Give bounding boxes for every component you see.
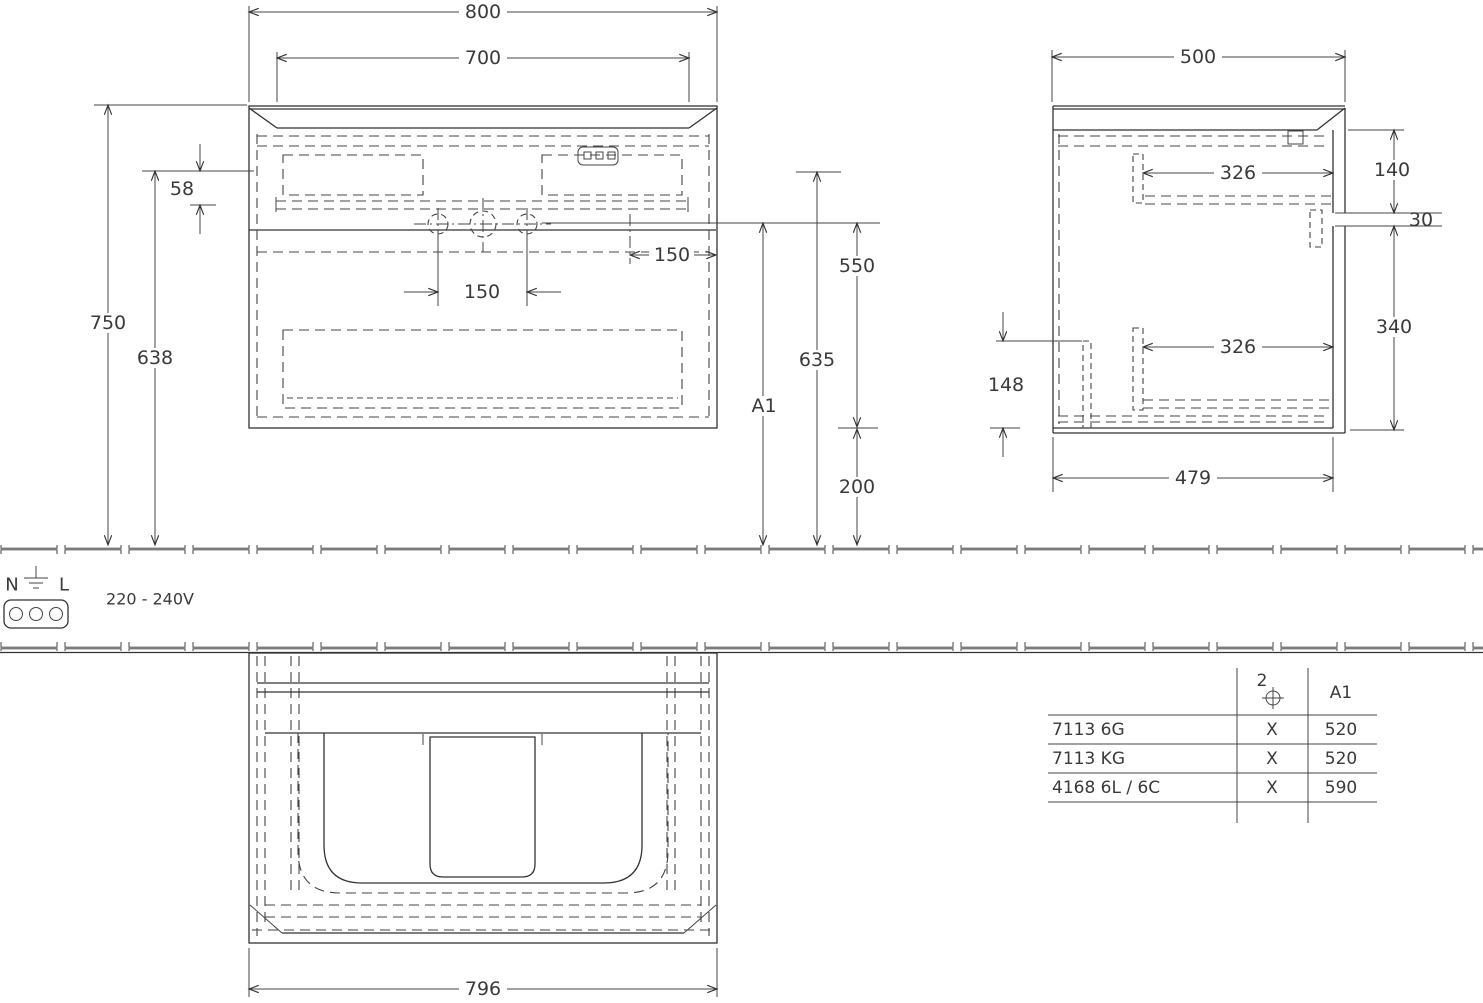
- table-row: 7113 KG X 520: [1052, 749, 1357, 769]
- table-cell-holes: X: [1266, 720, 1278, 740]
- table-row: 4168 6L / 6C X 590: [1052, 778, 1357, 798]
- label-voltage: 220 - 240V: [106, 590, 194, 609]
- dim-front-height-550: 550: [839, 255, 875, 277]
- dim-plan-width-796: 796: [465, 978, 501, 1000]
- handle-recess: [1310, 210, 1322, 247]
- side-dimensions: 500 326 140 30 340 326 148 479: [988, 46, 1442, 492]
- label-line: L: [59, 575, 69, 596]
- dim-front-tap-spacing-150: 150: [464, 281, 500, 303]
- table-header-holes: 2: [1257, 671, 1268, 691]
- drain-box: [430, 737, 535, 877]
- side-view: [1053, 106, 1345, 433]
- technical-drawing-page: 800 700 750 638 58 150 150: [0, 0, 1483, 1003]
- dim-front-height-200: 200: [839, 476, 875, 498]
- dim-front-width-800: 800: [465, 1, 501, 23]
- label-neutral: N: [5, 575, 18, 596]
- table-cell-model: 4168 6L / 6C: [1052, 778, 1160, 798]
- basin-rim-hidden: [298, 733, 668, 893]
- wall-section-upper: [0, 545, 1483, 554]
- tap-hole-icons: [414, 198, 551, 252]
- power-info: N L 220 - 240V: [4, 566, 194, 628]
- table-cell-model: 7113 KG: [1052, 749, 1125, 769]
- dim-front-height-a1: A1: [751, 395, 776, 417]
- dim-front-height-635: 635: [799, 349, 835, 371]
- table-cell-a1: 520: [1325, 749, 1357, 769]
- table-header-a1: A1: [1330, 683, 1352, 703]
- socket-strip-icon: [578, 147, 618, 165]
- dim-front-width-700: 700: [465, 47, 501, 69]
- dim-front-offset-58: 58: [170, 178, 194, 200]
- dim-front-height-638: 638: [137, 347, 173, 369]
- dim-side-gap-30: 30: [1409, 209, 1433, 231]
- dim-front-tap-edge-150: 150: [654, 244, 690, 266]
- dim-side-inner-326-upper: 326: [1220, 162, 1256, 184]
- dim-side-depth-500: 500: [1180, 46, 1216, 68]
- earth-ground-icon: [24, 566, 48, 588]
- dim-side-front-top-140: 140: [1374, 159, 1410, 181]
- socket-icon: [4, 600, 68, 628]
- table-cell-a1: 590: [1325, 778, 1357, 798]
- dim-front-height-750: 750: [90, 312, 126, 334]
- dim-side-depth-479: 479: [1175, 467, 1211, 489]
- variant-table: 2 A1 7113 6G X 520 7113 KG X 520 4168 6L…: [1048, 668, 1377, 823]
- drawing-canvas: 800 700 750 638 58 150 150: [0, 0, 1483, 1003]
- table-cell-model: 7113 6G: [1052, 720, 1125, 740]
- table-cell-holes: X: [1266, 749, 1278, 769]
- table-cell-holes: X: [1266, 778, 1278, 798]
- dim-side-inner-326-lower: 326: [1220, 336, 1256, 358]
- wall-section-lower: [0, 642, 1483, 653]
- dim-side-rear-148: 148: [988, 374, 1024, 396]
- front-dimensions: 800 700 750 638 58 150 150: [85, 1, 880, 545]
- plan-dimensions: 796: [249, 948, 717, 1000]
- table-row: 7113 6G X 520: [1052, 720, 1357, 740]
- dim-side-front-lower-340: 340: [1376, 316, 1412, 338]
- basin-outline: [324, 733, 642, 883]
- front-view: [249, 106, 717, 428]
- table-cell-a1: 520: [1325, 720, 1357, 740]
- plan-view: [249, 653, 717, 943]
